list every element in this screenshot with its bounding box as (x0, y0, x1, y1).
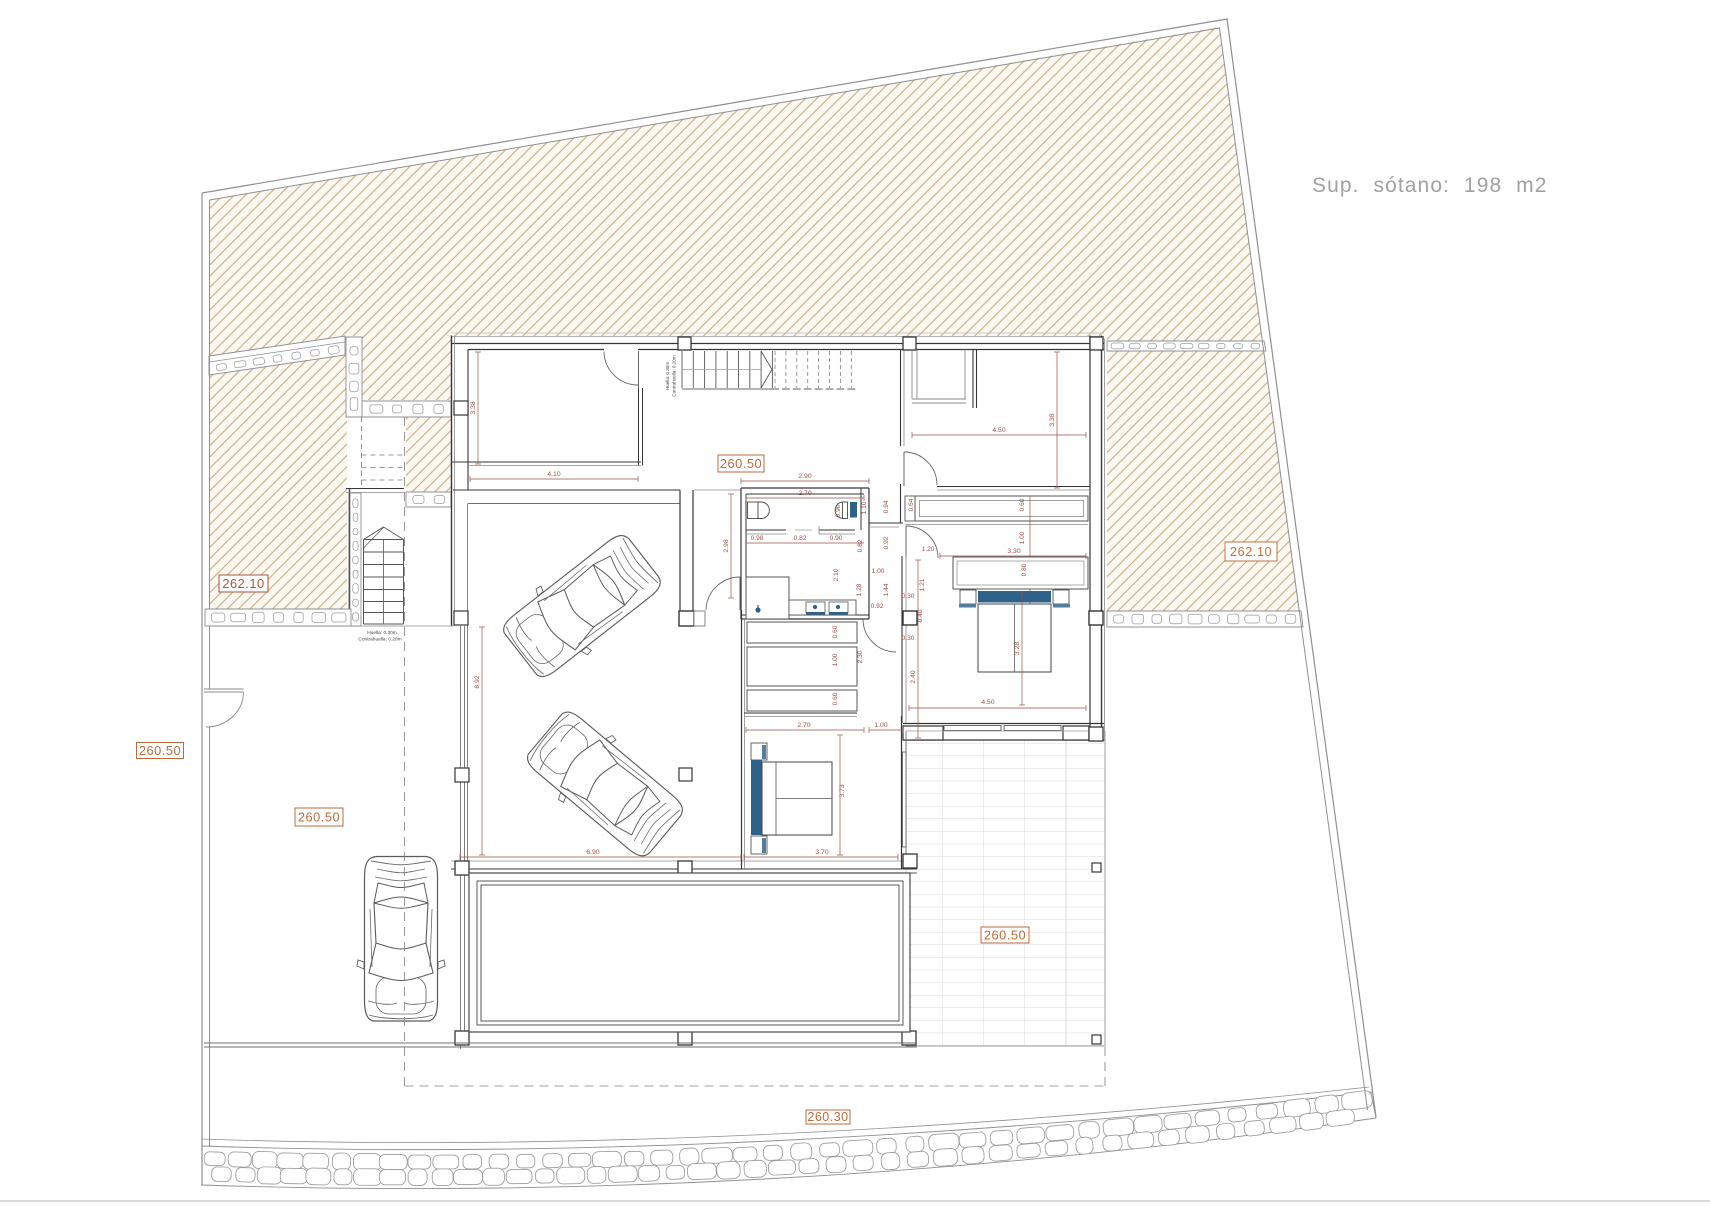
svg-text:3.38: 3.38 (1049, 413, 1056, 426)
svg-text:260.30: 260.30 (807, 1110, 848, 1124)
svg-text:3.73: 3.73 (839, 784, 846, 797)
svg-text:4.10: 4.10 (547, 471, 560, 478)
svg-text:0.94: 0.94 (883, 500, 890, 513)
svg-text:3.70: 3.70 (815, 849, 828, 856)
svg-text:1.00: 1.00 (874, 722, 887, 729)
svg-text:Contrahuella: 0.20m: Contrahuella: 0.20m (358, 637, 401, 643)
svg-text:1.00: 1.00 (872, 568, 885, 575)
svg-text:0.98: 0.98 (751, 535, 764, 542)
svg-text:3.30: 3.30 (1007, 548, 1020, 555)
svg-text:4.50: 4.50 (981, 699, 994, 706)
svg-text:0.92: 0.92 (871, 603, 884, 610)
svg-text:262.10: 262.10 (222, 576, 264, 591)
svg-text:0.92: 0.92 (883, 536, 890, 549)
svg-text:0.30: 0.30 (902, 593, 915, 600)
svg-text:2.10: 2.10 (833, 568, 840, 581)
svg-text:0.90: 0.90 (835, 504, 842, 517)
svg-text:1.21: 1.21 (919, 578, 926, 591)
svg-text:2.70: 2.70 (797, 722, 810, 729)
svg-text:3.38: 3.38 (470, 401, 477, 414)
svg-text:0.60: 0.60 (832, 625, 839, 638)
svg-text:1.44: 1.44 (883, 583, 890, 596)
svg-text:1.20: 1.20 (922, 546, 935, 553)
svg-text:4.50: 4.50 (992, 427, 1005, 434)
svg-text:8.92: 8.92 (474, 675, 481, 688)
svg-text:2.30: 2.30 (857, 650, 864, 663)
svg-text:0.30: 0.30 (902, 635, 915, 642)
svg-text:260.50: 260.50 (298, 809, 340, 824)
svg-text:0.60: 0.60 (1019, 498, 1026, 511)
svg-text:0.82: 0.82 (794, 535, 807, 542)
svg-text:1.10: 1.10 (861, 501, 868, 514)
svg-text:1.00: 1.00 (832, 653, 839, 666)
svg-text:0.82: 0.82 (857, 539, 864, 552)
svg-text:Huella: 0.30m: Huella: 0.30m (367, 630, 397, 636)
svg-text:1.28: 1.28 (856, 583, 863, 596)
svg-text:0.64: 0.64 (908, 498, 915, 511)
svg-text:0.60: 0.60 (832, 692, 839, 705)
svg-text:Huella: 0.30m: Huella: 0.30m (665, 362, 670, 391)
svg-text:2.40: 2.40 (910, 670, 917, 683)
svg-text:260.50: 260.50 (139, 743, 181, 758)
svg-text:0.80: 0.80 (1021, 563, 1028, 576)
svg-text:260.50: 260.50 (984, 927, 1026, 942)
svg-text:2.90: 2.90 (798, 473, 811, 480)
svg-text:0.90: 0.90 (830, 535, 843, 542)
svg-text:Contrahuella: 0.20m: Contrahuella: 0.20m (672, 355, 677, 397)
svg-text:3.28: 3.28 (1014, 642, 1021, 655)
svg-text:2.70: 2.70 (798, 490, 811, 497)
svg-text:Sup. sótano: 198 m2: Sup. sótano: 198 m2 (1312, 174, 1548, 197)
svg-text:6.90: 6.90 (586, 849, 599, 856)
svg-text:1.00: 1.00 (1019, 531, 1026, 544)
svg-text:262.10: 262.10 (1230, 544, 1272, 559)
svg-text:2.98: 2.98 (723, 539, 730, 552)
svg-text:260.50: 260.50 (720, 456, 762, 471)
